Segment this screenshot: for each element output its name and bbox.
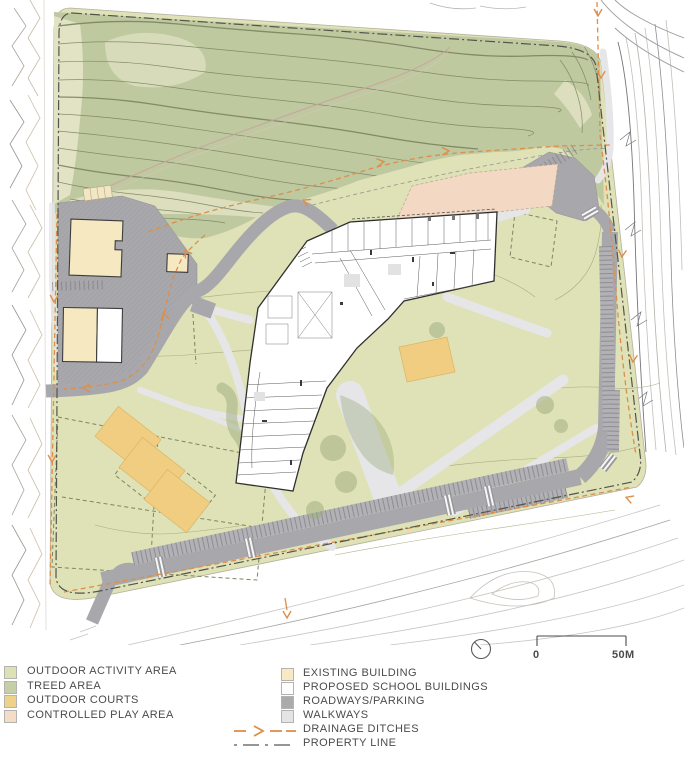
site-plan-page: OUTDOOR ACTIVITY AREA TREED AREA OUTDOOR… xyxy=(0,0,684,768)
legend: OUTDOOR ACTIVITY AREA TREED AREA OUTDOOR… xyxy=(0,645,684,768)
offsite-lines-top xyxy=(430,3,526,9)
legend-label: CONTROLLED PLAY AREA xyxy=(27,709,174,721)
legend-label: EXISTING BUILDING xyxy=(303,667,417,679)
offsite-contours-left xyxy=(10,0,46,630)
legend-label: DRAINAGE DITCHES xyxy=(303,723,419,735)
proposed-building-swatch xyxy=(281,682,294,695)
outdoor-activity-swatch xyxy=(4,666,17,679)
outdoor-courts-swatch xyxy=(4,695,17,708)
legend-label: OUTDOOR COURTS xyxy=(27,694,139,706)
legend-label: PROPOSED SCHOOL BUILDINGS xyxy=(303,681,488,693)
scale-bar xyxy=(531,632,633,650)
drainage-arrow-icon xyxy=(232,725,296,737)
treed-area-swatch xyxy=(4,681,17,694)
scale-zero-label: 0 xyxy=(533,649,540,661)
walkways-swatch xyxy=(281,710,294,723)
legend-label: TREED AREA xyxy=(27,680,101,692)
legend-label: WALKWAYS xyxy=(303,709,369,721)
dash-dot-line-icon xyxy=(232,739,296,751)
north-indicator-icon xyxy=(468,636,494,662)
site-plan-map xyxy=(0,0,684,645)
offsite-road-top-right xyxy=(601,0,684,72)
legend-label: ROADWAYS/PARKING xyxy=(303,695,425,707)
legend-label: PROPERTY LINE xyxy=(303,737,396,749)
controlled-play-swatch xyxy=(4,710,17,723)
legend-label: OUTDOOR ACTIVITY AREA xyxy=(27,665,177,677)
scale-50m-label: 50M xyxy=(612,649,635,661)
roadways-swatch xyxy=(281,696,294,709)
existing-building-swatch xyxy=(281,668,294,681)
